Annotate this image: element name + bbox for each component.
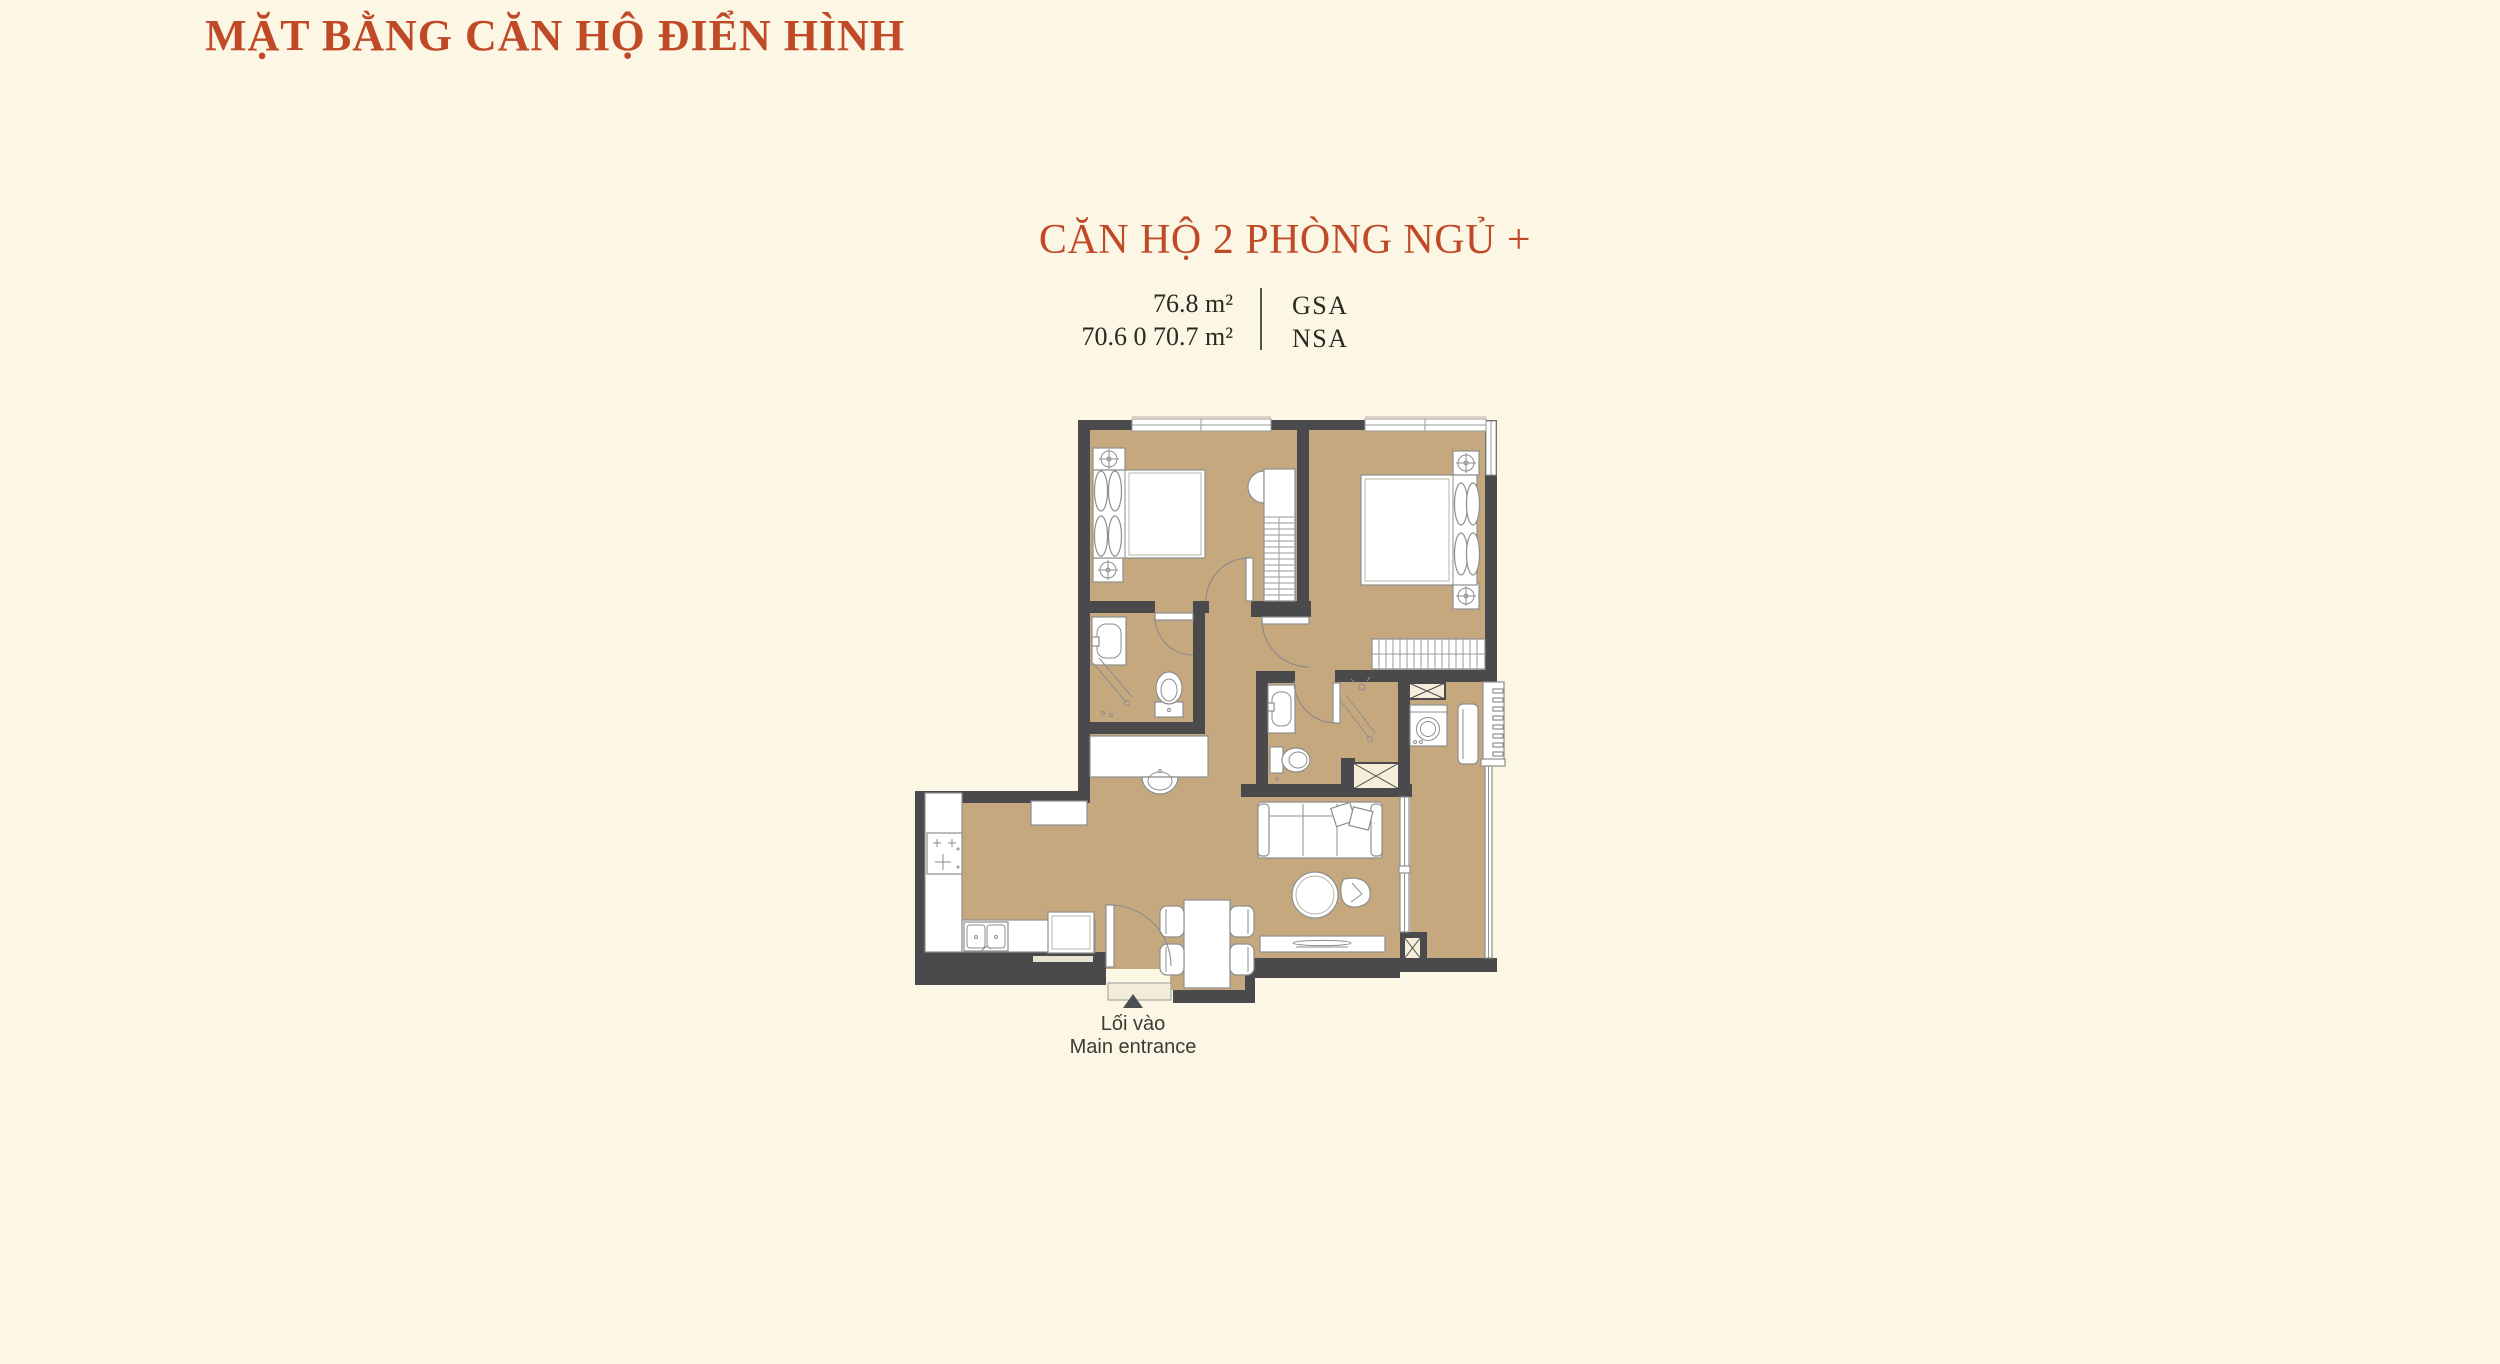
spec-value-nsa: 70.6 0 70.7 m² — [1033, 322, 1233, 352]
tv-console — [1260, 936, 1385, 952]
kitchen-cabinet — [1031, 801, 1087, 825]
entrance-label-en: Main entrance — [1008, 1036, 1258, 1059]
floorplan — [915, 405, 1515, 1020]
spec-value-gsa: 76.8 m² — [1033, 289, 1233, 319]
side-chair — [1341, 878, 1370, 907]
spec-divider — [1260, 288, 1262, 350]
entrance-label-vi: Lối vào — [1008, 1013, 1258, 1036]
chair — [1160, 944, 1184, 975]
sink — [1092, 617, 1126, 665]
window-top-right — [1365, 417, 1486, 431]
coffee-table — [1292, 872, 1338, 918]
balcony-glass-door — [1399, 797, 1410, 932]
chair — [1230, 944, 1254, 975]
chair — [1160, 906, 1184, 937]
wall-strip — [1033, 956, 1093, 962]
wardrobe — [1372, 639, 1485, 669]
floorplan-drawing — [915, 405, 1515, 1020]
spec-label-gsa: GSA — [1292, 291, 1349, 321]
balcony-bench — [1458, 704, 1478, 764]
sink — [1268, 685, 1295, 733]
washing-machine — [1410, 705, 1447, 746]
window-top-left — [1132, 417, 1271, 431]
balcony-railing — [1481, 682, 1505, 958]
page-title: MẶT BẰNG CĂN HỘ ĐIỂN HÌNH — [205, 10, 905, 61]
dining-table — [1184, 900, 1230, 988]
window-right-side — [1486, 421, 1496, 475]
toilet — [1155, 672, 1183, 717]
stove — [927, 833, 962, 874]
unit-heading: CĂN HỘ 2 PHÒNG NGỦ + — [1020, 216, 1550, 264]
dining-area — [1160, 900, 1254, 988]
appliance — [1048, 912, 1094, 953]
entrance-marker-icon — [1123, 994, 1143, 1008]
sofa — [1258, 802, 1382, 858]
spec-label-nsa: NSA — [1292, 324, 1349, 354]
page: MẶT BẰNG CĂN HỘ ĐIỂN HÌNH CĂN HỘ 2 PHÒNG… — [0, 0, 2500, 1364]
kitchen-sink — [964, 922, 1008, 951]
chair — [1230, 906, 1254, 937]
